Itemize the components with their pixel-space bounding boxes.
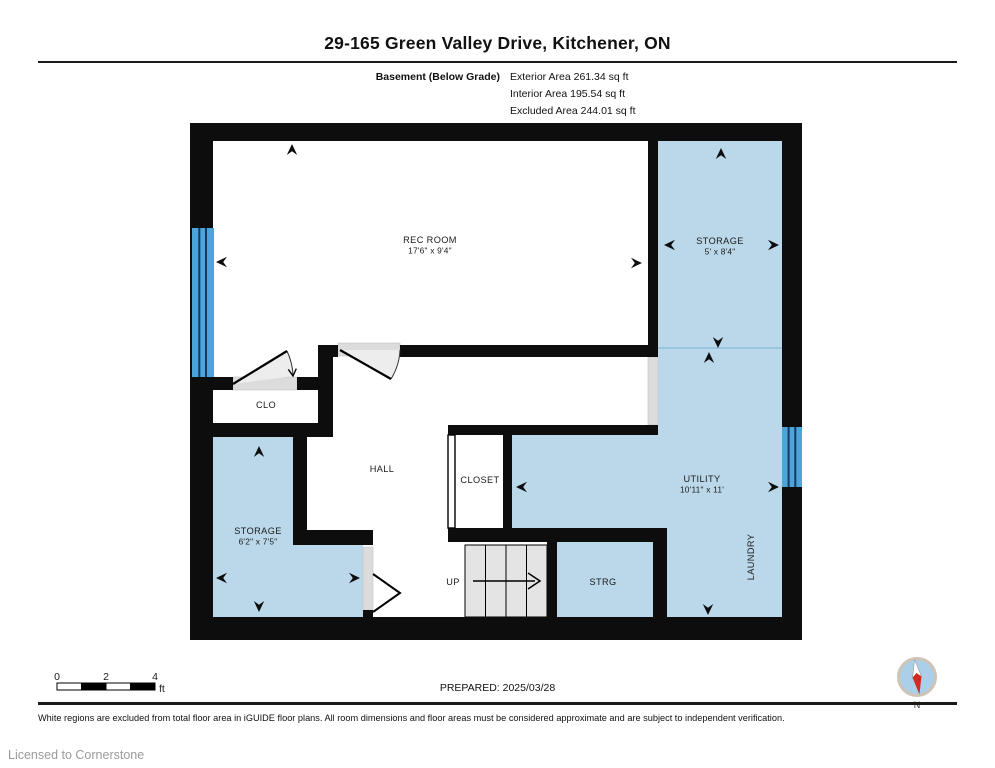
- wall-clo-top-right: [297, 377, 318, 390]
- storage-laundry-fill: [658, 141, 782, 617]
- room-label-storage-tr: STORAGE: [696, 236, 744, 246]
- stairs: [465, 545, 547, 617]
- prepared-date: PREPARED: 2025/03/28: [0, 682, 995, 694]
- wall-storage-bl-right: [293, 437, 307, 545]
- window-left: [192, 228, 214, 377]
- wall-outer-bottom: [190, 617, 802, 640]
- title-divider: [38, 61, 957, 63]
- utility-fill: [512, 433, 658, 528]
- wall-clo-bottom: [190, 423, 333, 437]
- wall-stairs-right: [547, 542, 557, 617]
- room-dims-rec-room: 17'6" x 9'4": [408, 246, 452, 256]
- dim-arrow-left: [216, 257, 227, 267]
- wall-rec-storage: [648, 141, 658, 357]
- wall-rec-bottom: [400, 345, 648, 357]
- room-label-up: UP: [446, 577, 460, 587]
- room-dims-storage-tr: 5' x 8'4": [705, 247, 736, 257]
- wall-storage-bl-mid: [293, 530, 373, 545]
- page-title: 29-165 Green Valley Drive, Kitchener, ON: [0, 33, 995, 54]
- wall-stairs-strg-top: [448, 528, 667, 542]
- floor-label: Basement (Below Grade): [280, 71, 500, 83]
- wall-clo-right: [318, 345, 333, 435]
- hall-utility-opening: [648, 357, 658, 425]
- room-label-closet: CLOSET: [460, 475, 499, 485]
- room-label-hall: HALL: [370, 464, 395, 474]
- room-label-rec-room: REC ROOM: [403, 235, 457, 245]
- wall-closet-right: [503, 435, 512, 537]
- excluded-area: Excluded Area 244.01 sq ft: [510, 105, 636, 117]
- disclaimer-text: White regions are excluded from total fl…: [38, 713, 968, 723]
- wall-outer-top: [190, 123, 802, 141]
- footer-divider: [38, 702, 957, 705]
- room-label-storage-bl: STORAGE: [234, 526, 282, 536]
- room-label-laundry: LAUNDRY: [746, 534, 756, 581]
- wall-storage-door-foot: [363, 610, 373, 617]
- exterior-area: Exterior Area 261.34 sq ft: [510, 71, 628, 83]
- floorplan-drawing: REC ROOM 17'6" x 9'4" STORAGE 5' x 8'4" …: [190, 123, 802, 640]
- room-label-strg: STRG: [589, 577, 616, 587]
- wall-clo-top-left: [190, 377, 233, 390]
- closet-door: [448, 435, 455, 528]
- storage-bl-door: [373, 574, 400, 612]
- licensed-text: Licensed to Cornerstone: [8, 748, 144, 762]
- wall-outer-right: [782, 123, 802, 640]
- storage-door-sill: [363, 547, 373, 610]
- rec-room-door: [340, 350, 400, 379]
- room-label-clo: CLO: [256, 400, 276, 410]
- dim-arrow-right: [631, 258, 642, 268]
- floorplan-page: 29-165 Green Valley Drive, Kitchener, ON…: [0, 0, 995, 768]
- room-dims-storage-bl: 6'2" x 7'5": [239, 537, 278, 547]
- dim-arrow-up: [287, 144, 297, 155]
- room-label-utility: UTILITY: [683, 474, 720, 484]
- room-dims-utility: 10'11" x 11': [680, 485, 724, 495]
- wall-closet-top: [448, 425, 658, 435]
- wall-strg-right: [653, 528, 667, 617]
- window-right: [782, 427, 802, 487]
- wall-rec-bottom-sliver: [333, 345, 338, 357]
- interior-area: Interior Area 195.54 sq ft: [510, 88, 625, 100]
